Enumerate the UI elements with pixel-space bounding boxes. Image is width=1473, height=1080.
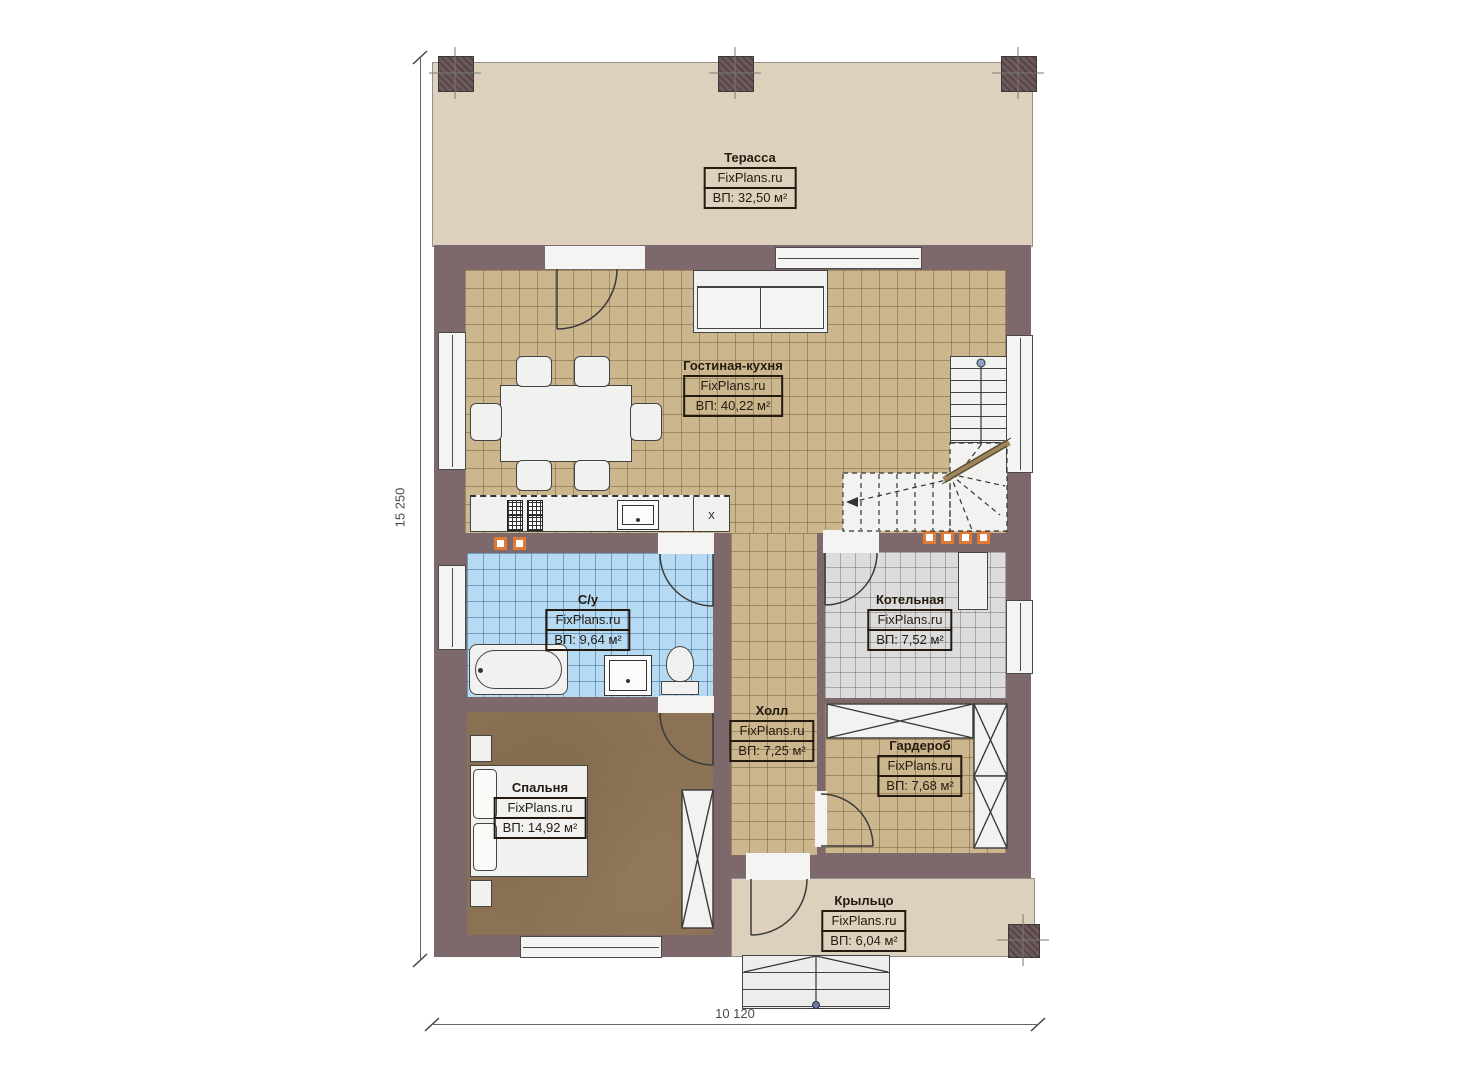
room-brand: FixPlans.ru — [867, 609, 952, 631]
dining-table — [500, 385, 632, 462]
vent-marker — [977, 531, 990, 544]
door-opening-bathroom — [658, 533, 714, 554]
room-label-hall: Холл FixPlans.ru ВП: 7,25 м² — [729, 703, 814, 762]
dimension-label-left: 15 250 — [392, 488, 407, 528]
stairs-winder — [950, 443, 1007, 531]
chair — [516, 460, 552, 491]
dimension-line-bottom — [432, 1024, 1038, 1025]
stove-burner — [527, 500, 543, 516]
room-label-terrace: Терасса FixPlans.ru ВП: 32,50 м² — [704, 150, 797, 209]
window-bottom-bedroom — [520, 936, 662, 958]
vent-marker — [941, 531, 954, 544]
porch-steps — [742, 955, 890, 1009]
chair — [516, 356, 552, 387]
room-brand: FixPlans.ru — [704, 167, 797, 189]
room-label-boiler: Котельная FixPlans.ru ВП: 7,52 м² — [867, 592, 952, 651]
sofa-cushion — [697, 287, 761, 329]
room-label-living-kitchen: Гостиная-кухня FixPlans.ru ВП: 40,22 м² — [683, 358, 783, 417]
room-title: Спальня — [494, 780, 587, 795]
bathroom-sink — [604, 655, 652, 696]
pillar-porch — [1008, 924, 1040, 958]
sofa-cushion — [760, 287, 824, 329]
sofa — [693, 270, 828, 333]
kitchen-counter: x — [470, 495, 730, 532]
room-title: Холл — [729, 703, 814, 718]
room-title: С/у — [545, 592, 630, 607]
room-title: Терасса — [704, 150, 797, 165]
room-brand: FixPlans.ru — [821, 910, 906, 932]
chair — [470, 403, 502, 441]
bathtub — [469, 644, 568, 695]
stairs-lower-flight — [843, 473, 950, 531]
kitchen-cabinet-x: x — [693, 497, 729, 531]
pillar-top-center — [718, 56, 754, 92]
stove-burner — [527, 515, 543, 531]
room-title: Гостиная-кухня — [683, 358, 783, 373]
boiler-unit — [958, 552, 988, 610]
floor-plan-canvas: x — [0, 0, 1473, 1080]
toilet-tank — [661, 681, 699, 695]
window-right-living — [1006, 335, 1033, 473]
door-opening-terrace — [545, 246, 645, 269]
stairs-upper-flight — [950, 356, 1007, 443]
room-area: ВП: 7,52 м² — [867, 629, 952, 651]
dimension-label-bottom: 10 120 — [695, 1006, 775, 1021]
chair — [574, 356, 610, 387]
hall-floor — [731, 533, 817, 855]
vent-marker — [513, 537, 526, 550]
pillar-top-left — [438, 56, 474, 92]
room-area: ВП: 9,64 м² — [545, 629, 630, 651]
room-label-wardrobe: Гардероб FixPlans.ru ВП: 7,68 м² — [877, 738, 962, 797]
window-left-bathroom — [438, 565, 466, 650]
room-brand: FixPlans.ru — [877, 755, 962, 777]
room-area: ВП: 6,04 м² — [821, 930, 906, 952]
room-brand: FixPlans.ru — [545, 609, 630, 631]
room-brand: FixPlans.ru — [494, 797, 587, 819]
room-area: ВП: 32,50 м² — [704, 187, 797, 209]
room-brand: FixPlans.ru — [729, 720, 814, 742]
door-opening-bedroom — [658, 696, 714, 713]
chair — [574, 460, 610, 491]
nightstand — [470, 735, 492, 762]
door-opening-wardrobe — [815, 791, 827, 847]
stove-burner — [507, 515, 523, 531]
door-opening-entry — [746, 853, 810, 880]
room-title: Котельная — [867, 592, 952, 607]
dimension-line-left — [420, 57, 421, 960]
door-opening-boiler — [823, 530, 879, 553]
room-area: ВП: 7,68 м² — [877, 775, 962, 797]
room-area: ВП: 40,22 м² — [683, 395, 783, 417]
toilet-bowl — [666, 646, 694, 682]
room-label-bathroom: С/у FixPlans.ru ВП: 9,64 м² — [545, 592, 630, 651]
pillar-top-right — [1001, 56, 1037, 92]
room-label-bedroom: Спальня FixPlans.ru ВП: 14,92 м² — [494, 780, 587, 839]
room-brand: FixPlans.ru — [683, 375, 783, 397]
window-left-living — [438, 332, 466, 470]
chair — [630, 403, 662, 441]
vent-marker — [959, 531, 972, 544]
vent-marker — [494, 537, 507, 550]
room-title: Крыльцо — [821, 893, 906, 908]
room-area: ВП: 14,92 м² — [494, 817, 587, 839]
nightstand — [470, 880, 492, 907]
sofa-back — [697, 274, 824, 287]
vent-marker — [923, 531, 936, 544]
kitchen-sink — [617, 500, 659, 530]
window-right-boiler — [1006, 600, 1033, 674]
stove-burner — [507, 500, 523, 516]
room-area: ВП: 7,25 м² — [729, 740, 814, 762]
window-top-living — [775, 247, 922, 269]
room-label-porch: Крыльцо FixPlans.ru ВП: 6,04 м² — [821, 893, 906, 952]
room-title: Гардероб — [877, 738, 962, 753]
